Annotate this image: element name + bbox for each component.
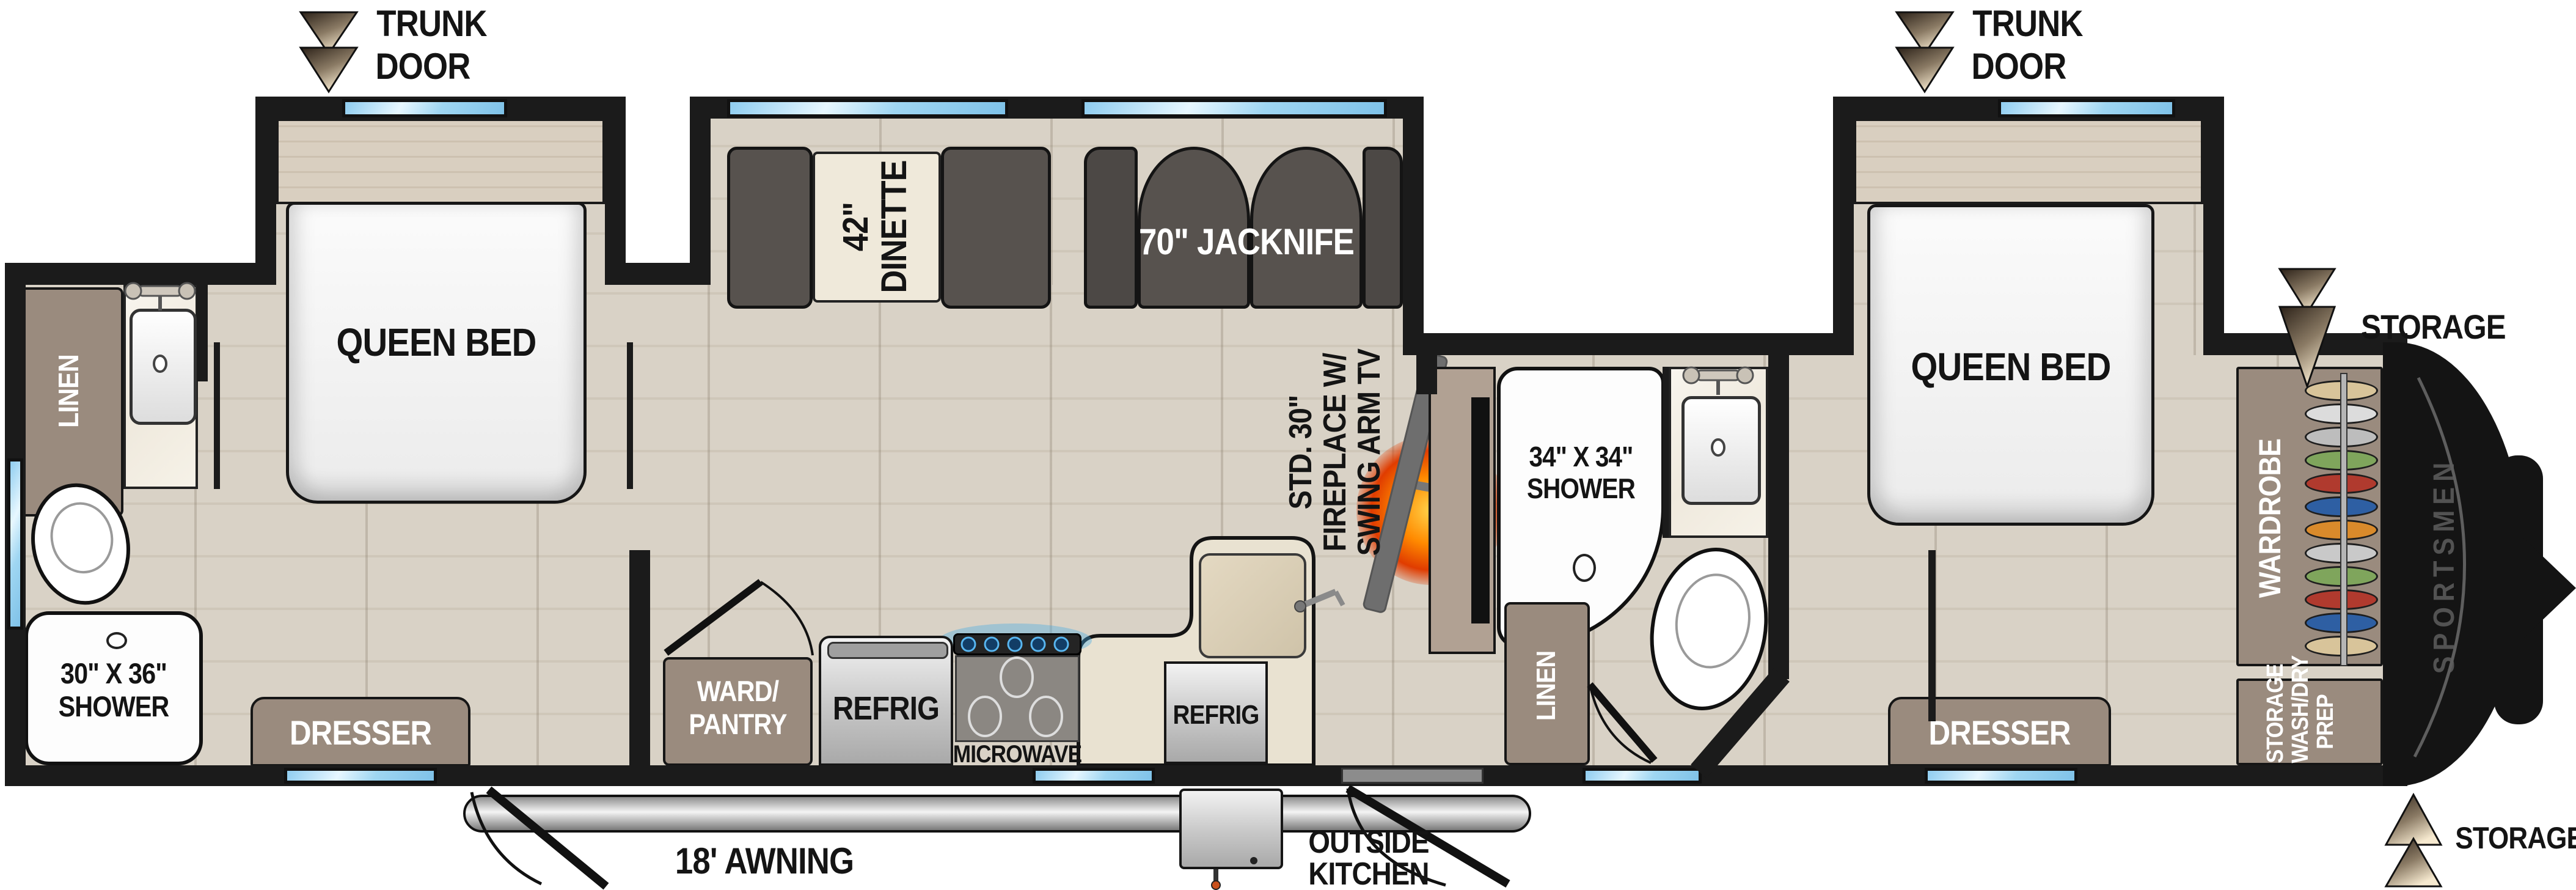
rear-trunk-door-arrow-icon2 <box>301 48 357 92</box>
pantry-door-swing-arc <box>761 582 813 655</box>
mid-sink-drain <box>1712 439 1724 455</box>
storage-top-arrow-icon2 <box>2280 307 2335 386</box>
outside-kitchen-spigot <box>1212 857 1257 889</box>
hitch-coupler <box>2522 537 2576 639</box>
rv-floor-plan: LINEN 30" X 36" SHOWER QUEEN BED DRESSER… <box>0 0 2576 890</box>
mid-bath-faucet-icon <box>1683 367 1753 395</box>
outside-kitchen-label-2: KITCHEN <box>1261 858 1476 890</box>
storage-bottom-arrow-icon2 <box>2386 839 2441 886</box>
front-cap-accent <box>2415 378 2465 757</box>
storage-bottom-label: STORAGE <box>2455 823 2576 854</box>
over-layer <box>0 0 2576 890</box>
rear-bath-faucet-icon <box>125 283 195 311</box>
rear-sink-drain <box>154 356 166 372</box>
mid-bath-door-leaf <box>1590 685 1655 760</box>
rear-trunk-door-label-1: TRUNK <box>376 5 486 42</box>
rear-trunk-door-label-2: DOOR <box>376 48 470 85</box>
kitchen-faucet-icon <box>1295 592 1343 612</box>
front-trunk-door-arrow-icon2 <box>1897 48 1953 92</box>
front-trunk-door-label-2: DOOR <box>1972 48 2066 85</box>
pantry-door-leaf <box>666 582 761 653</box>
awning-label: 18' AWNING <box>675 842 854 880</box>
front-trunk-door-label-1: TRUNK <box>1972 5 2082 42</box>
storage-top-label: STORAGE <box>2361 309 2506 344</box>
range-burners <box>969 658 1062 736</box>
cooktop-knobs <box>962 638 1068 651</box>
mid-bath-diagonal-wall <box>1699 675 1782 771</box>
awning-arm-left <box>489 790 606 886</box>
outside-kitchen-label-1: OUTSIDE <box>1261 826 1476 859</box>
